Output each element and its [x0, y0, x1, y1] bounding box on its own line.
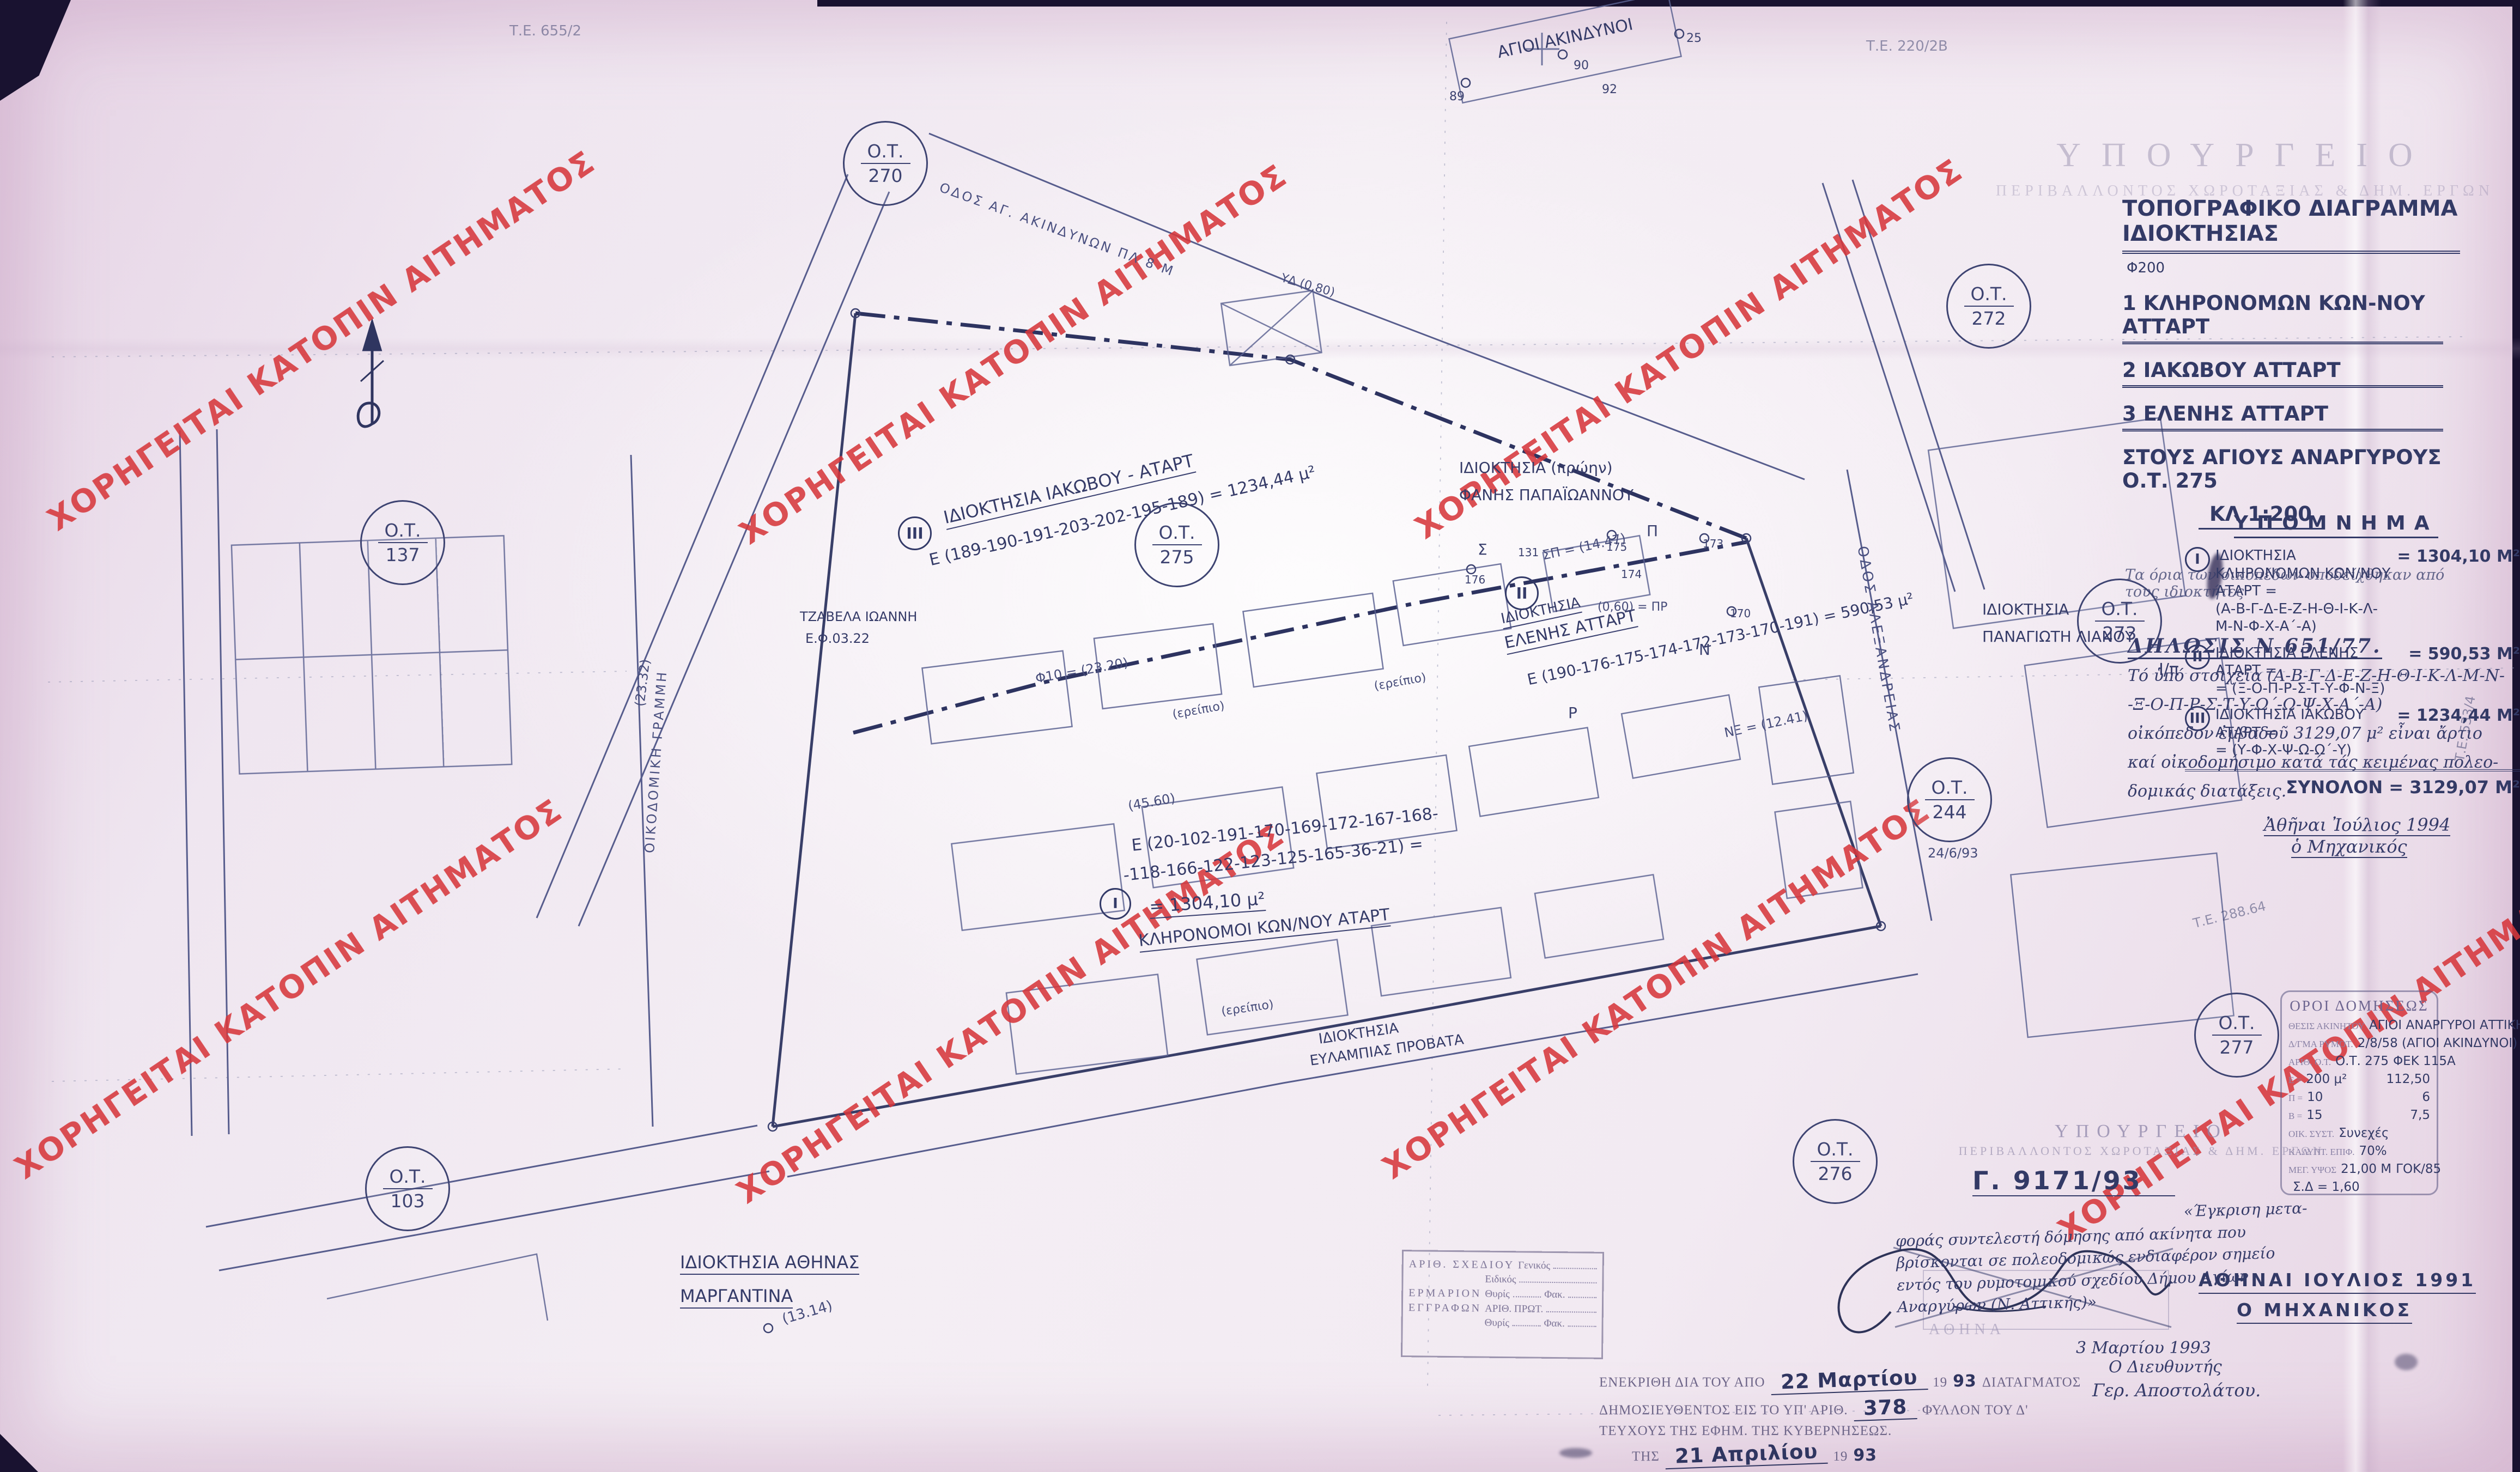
registry-row1-label: ΑΡΙΘ. ΣΧΕΔΙΟΥ — [1409, 1258, 1515, 1272]
registry-row2-label: ΕΡΜΑΡΙΟΝ — [1408, 1287, 1481, 1300]
registry-row3-label: ΕΓΓΡΑΦΩΝ — [1408, 1301, 1481, 1315]
declaration-line: -Ξ-Ο-Π-Ρ-Σ-Τ-Υ-Ω΄-Ω-Ψ-Χ-Α΄-Α) — [2128, 692, 2509, 717]
ot-number: 272 — [1964, 306, 2014, 329]
owner-line: 2 ΙΑΚΩΒΟΥ ΑΤΤΑΡΤ — [2122, 358, 2443, 388]
ot-label: Ο.Τ. — [867, 141, 903, 162]
approval-l1c: ΔΙΑΤΑΓΜΑΤΟΣ — [1982, 1375, 2081, 1390]
declaration-line: Τό ὑπό στοιχεῖα (Α-Β-Γ-Δ-Ε-Ζ-Η-Θ-Ι-Κ-Λ-Μ… — [2128, 664, 2509, 688]
block-number-circle: Ο.Τ.276 — [1793, 1119, 1878, 1204]
page-root: { "watermark": { "text": "ΧΟΡΗΓΕΙΤΑΙ ΚΑΤ… — [0, 0, 2520, 1472]
north-arrow — [358, 323, 384, 427]
plan-annotation: 176 — [1465, 573, 1485, 586]
blank-field — [1553, 1268, 1597, 1269]
declaration-title: ΔΗΛΩΣΙΣ Ν 651/77. — [2128, 635, 2382, 659]
legend-item-line1: ΙΔΙΟΚΤΗΣΙΑ ΚΛΗΡΟΝΟΜΩΝ ΚΩΝ/ΝΟΥ ΑΤΑΡΤ = — [2215, 547, 2391, 600]
ministry-stamp-line1: ΥΠΟΥΡΓΕΙΟ — [1896, 1121, 2387, 1142]
building-terms-row: Ε =200 μ²112,50 — [2288, 1072, 2430, 1086]
block-number-circle: Ο.Τ.244 — [1907, 757, 1992, 842]
director-title: Ο Διευθυντής — [2109, 1358, 2387, 1377]
terms-value2: ΦΕΚ 115Α — [2393, 1054, 2456, 1068]
ot-number: 103 — [383, 1188, 433, 1212]
building-terms-row: Π =106 — [2288, 1090, 2430, 1104]
ot-label: Ο.Τ. — [1817, 1139, 1853, 1160]
blank-field — [1568, 1325, 1596, 1327]
block-number-circle: Ο.Τ.272 — [1946, 264, 2031, 349]
approval-date2-handwritten: 21 Απριλίου — [1665, 1439, 1828, 1469]
declaration-line: καί οἰκοδομήσιμο κατά τάς κειμένας πολεο… — [2128, 750, 2509, 775]
block-number-circle: Ο.Τ.277 — [2194, 993, 2279, 1078]
approval-gazette-number: 378 — [1853, 1395, 1917, 1421]
terms-value2: 6 — [2422, 1090, 2430, 1104]
plan-annotation: ΙΔΙΟΚΤΗΣΙΑ ΑΘΗΝΑΣ — [680, 1252, 859, 1275]
block-number-circle: Ο.Τ.270 — [843, 121, 928, 206]
blank-field — [1513, 1325, 1541, 1327]
engineer-place-date: ΑΘΗΝΑΙ ΙΟΥΛΙΟΣ 1991 — [2199, 1269, 2476, 1294]
building-terms-row: Δ/ΓΜΑ ΡΥΜΟΤ.2/8/58 (ΑΓΙΟΙ ΑΚΙΝΔΥΝΟΙ) — [2288, 1036, 2430, 1050]
title-block: ΤΟΠΟΓΡΑΦΙΚΟ ΔΙΑΓΡΑΜΜΑ ΙΔΙΟΚΤΗΣΙΑΣ Φ200 1… — [2122, 196, 2460, 530]
plan-annotation: Ρ — [1568, 704, 1577, 722]
block-outline — [773, 313, 1881, 1127]
ot-number: 270 — [861, 163, 910, 186]
terms-value: Ο.Τ. 275 — [2335, 1054, 2389, 1068]
property-marker-circled: Ι — [1100, 888, 1131, 920]
approval-l3: ΤΕΥΧΟΥΣ ΤΗΣ ΕΦΗΜ. ΤΗΣ ΚΥΒΕΡΝΗΣΕΩΣ. — [1599, 1424, 1892, 1439]
terms-value: 15 — [2306, 1108, 2322, 1122]
ot-label: Ο.Τ. — [2101, 598, 2138, 619]
location-line: ΣΤΟΥΣ ΑΓΙΟΥΣ ΑΝΑΡΓΥΡΟΥΣ Ο.Τ. 275 — [2122, 446, 2460, 492]
plan-annotation: Π — [1647, 522, 1658, 540]
approval-stamp: ΕΝΕΚΡΙΘΗ ΔΙΑ ΤΟΥ ΑΠΟ 22 Μαρτίου 19 93 ΔΙ… — [1599, 1365, 2090, 1467]
block-number-circle: Ο.Τ.103 — [365, 1146, 450, 1231]
declaration-line: οἰκόπεδον ἐμβαδοῦ 3129,07 μ² εἶναι ἄρτιο — [2128, 721, 2509, 746]
registry-row3a: ΑΡΙΘ. ΠΡΩΤ. — [1485, 1303, 1543, 1316]
ministry-stamp-line2: ΠΕΡΙΒΑΛΛΟΝΤΟΣ ΧΩΡΟΤΑΞΙΑΣ & ΔΗΜ. ΕΡΓΩΝ — [1896, 1144, 2387, 1158]
building-terms-row: ΘΕΣΙΣ ΑΚΙΝΗΤΟΥΑΓΙΟΙ ΑΝΑΡΓΥΡΟΙ ΑΤΤΙΚΗΣ — [2288, 1018, 2430, 1032]
ghost-header-line1: ΥΠΟΥΡΓΕΙΟ — [1972, 136, 2517, 175]
property-marker-circled: ΙΙΙ — [898, 516, 932, 550]
legend-item-marker: Ι — [2185, 547, 2210, 572]
blank-field — [1513, 1296, 1541, 1298]
approval-date1-handwritten: 22 Μαρτίου — [1770, 1365, 1928, 1395]
ot-label: Ο.Τ. — [384, 520, 421, 541]
terms-label: Β = — [2288, 1111, 2302, 1122]
declaration-signer: ὁ Μηχανικός — [2291, 836, 2407, 858]
registry-row3b: Θυρίς — [1485, 1317, 1509, 1329]
ministry-date: 3 Μαρτίου 1993 — [2076, 1339, 2387, 1358]
survey-points — [764, 29, 1885, 1333]
plan-annotation: (0,60) = ΠΡ — [1598, 600, 1667, 614]
property-marker-circled: ΙΙ — [1505, 576, 1539, 610]
plan-annotation: ΙΔΙΟΚΤΗΣΙΑ (πρώην) — [1459, 459, 1613, 477]
declaration-body: Τό ὑπό στοιχεῖα (Α-Β-Γ-Δ-Ε-Ζ-Η-Θ-Ι-Κ-Λ-Μ… — [2128, 664, 2509, 804]
director-signature-name: Γερ. Αποστολάτου. — [2092, 1380, 2387, 1401]
registry-row2a: Θυρίς — [1485, 1288, 1509, 1300]
plan-annotation: Ε.Φ.03.22 — [805, 631, 870, 646]
terms-label: Π = — [2288, 1093, 2303, 1104]
terms-value: 2/8/58 (ΑΓΙΟΙ ΑΚΙΝΔΥΝΟΙ) — [2358, 1036, 2518, 1050]
registry-row1b: Ειδικός — [1485, 1274, 1516, 1286]
terms-value2: 7,5 — [2410, 1108, 2430, 1122]
blank-field — [1519, 1281, 1596, 1283]
blank-field — [1568, 1297, 1596, 1298]
protocol-number: Γ. 9171/93 — [1972, 1166, 2175, 1196]
building-terms-row: Β =157,5 — [2288, 1108, 2430, 1122]
owner-line: 1 ΚΛΗΡΟΝΟΜΩΝ ΚΩΝ-ΝΟΥ ΑΤΤΑΡΤ — [2122, 291, 2443, 344]
plan-annotation: 24/6/93 — [1928, 846, 1978, 861]
ot-number: 275 — [1152, 544, 1202, 568]
ot-label: Ο.Τ. — [389, 1166, 426, 1187]
ot-label: Ο.Τ. — [1931, 777, 1968, 798]
terms-value: ΑΓΙΟΙ ΑΝΑΡΓΥΡΟΙ ΑΤΤΙΚΗΣ — [2369, 1018, 2520, 1032]
approval-year2-handwritten: 93 — [1853, 1446, 1877, 1465]
ot-label: Ο.Τ. — [1158, 522, 1195, 543]
declaration-place-date: Ἀθῆναι Ἰούλιος 1994 — [2264, 814, 2450, 836]
drawing-ref: Φ200 — [2127, 260, 2165, 276]
plan-annotation: ΤΖΑΒΕΛΑ ΙΩΑΝΝΗ — [800, 609, 917, 624]
approval-l1a: ΕΝΕΚΡΙΘΗ ΔΙΑ ΤΟΥ ΑΠΟ — [1599, 1375, 1765, 1390]
plan-annotation: Τ.Ε. 220/2Β — [1866, 38, 1948, 54]
plan-annotation: 131 — [1518, 546, 1539, 559]
terms-value: 200 μ² — [2306, 1072, 2347, 1086]
terms-label: Ε = — [2288, 1075, 2302, 1086]
plan-annotation: ΦΑΝΗΣ ΠΑΠΑΪΩΑΝΝΟΥ — [1459, 486, 1634, 504]
approval-l4a: ΤΗΣ — [1632, 1449, 1660, 1464]
terms-value: 10 — [2307, 1090, 2323, 1104]
plan-annotation: 170 — [1730, 607, 1751, 620]
block-number-circle: Ο.Τ.137 — [360, 500, 445, 585]
plan-annotation: 175 — [1606, 540, 1627, 553]
registry-row1a: Γενικός — [1518, 1260, 1550, 1272]
engineer-date-box: ΑΘΗΝΑΙ ΙΟΥΛΙΟΣ 1991 Ο ΜΗΧΑΝΙΚΟΣ — [2199, 1269, 2482, 1324]
plan-annotation: 174 — [1621, 568, 1642, 581]
approval-l2b: ΦΥΛΛΟΝ ΤΟΥ Δ' — [1922, 1403, 2029, 1418]
plan-annotation: ΠΑΝΑΓΙΩΤΗ ΛΙΑΝΟΥ — [1982, 628, 2134, 646]
approval-l4b: 19 — [1833, 1449, 1848, 1464]
plan-annotation: Σ — [1478, 540, 1487, 558]
plan-annotation: Τ.Ε. 655/2 — [509, 23, 581, 39]
approval-l1b: 19 — [1933, 1375, 1947, 1390]
terms-label: ΑΡΙΘ. Ο.Τ. — [2288, 1057, 2331, 1068]
ot-number: 137 — [378, 542, 428, 565]
legend-item-area: = 1304,10 Μ² — [2397, 547, 2520, 566]
ot-number: 276 — [1811, 1161, 1860, 1184]
ot-label: Ο.Τ. — [2218, 1012, 2255, 1033]
registry-stamp: ΑΡΙΘ. ΣΧΕΔΙΟΥ Γενικός Ειδικός ΕΡΜΑΡΙΟΝ Θ… — [1401, 1250, 1604, 1359]
terms-label: ΘΕΣΙΣ ΑΚΙΝΗΤΟΥ — [2288, 1021, 2365, 1032]
blank-field — [1546, 1311, 1596, 1313]
ot-number: 277 — [2212, 1035, 2262, 1058]
ot-number: 244 — [1925, 799, 1975, 823]
building-terms-row: ΑΡΙΘ. Ο.Τ.Ο.Τ. 275ΦΕΚ 115Α — [2288, 1054, 2430, 1068]
drawing-title: ΤΟΠΟΓΡΑΦΙΚΟ ΔΙΑΓΡΑΜΜΑ ΙΔΙΟΚΤΗΣΙΑΣ — [2122, 196, 2460, 254]
ot-label: Ο.Τ. — [1970, 283, 2007, 305]
engineer-title: Ο ΜΗΧΑΝΙΚΟΣ — [2237, 1299, 2412, 1324]
owner-line: 3 ΕΛΕΝΗΣ ΑΤΤΑΡΤ — [2122, 402, 2443, 431]
plan-annotation: ΙΔΙΟΚΤΗΣΙΑ — [1982, 600, 2069, 618]
plan-annotation: ΜΑΡΓΑΝΤΙΝΑ — [680, 1286, 793, 1309]
terms-label: Δ/ΓΜΑ ΡΥΜΟΤ. — [2288, 1039, 2353, 1050]
registry-row2b: Φακ. — [1544, 1289, 1565, 1301]
plan-annotation: 25 — [1686, 32, 1702, 45]
plan-annotation: 173 — [1703, 537, 1723, 550]
plan-annotation: Ν — [1699, 641, 1710, 659]
ghost-ministry-header: ΥΠΟΥΡΓΕΙΟ ΠΕΡΙΒΑΛΛΟΝΤΟΣ ΧΩΡΟΤΑΞΙΑΣ & ΔΗΜ… — [1972, 136, 2517, 200]
legend-item: ΙΙΔΙΟΚΤΗΣΙΑ ΚΛΗΡΟΝΟΜΩΝ ΚΩΝ/ΝΟΥ ΑΤΑΡΤ =(Α… — [2185, 547, 2520, 636]
legend-item-line2: (Α-Β-Γ-Δ-Ε-Ζ-Η-Θ-Ι-Κ-Λ-Μ-Ν-Φ-Χ-Α΄-Α) — [2215, 600, 2391, 636]
declaration-block: ΔΗΛΩΣΙΣ Ν 651/77. Τό ὑπό στοιχεῖα (Α-Β-Γ… — [2128, 635, 2509, 858]
approval-l2a: ΔΗΜΟΣΙΕΥΘΕΝΤΟΣ ΕΙΣ ΤΟ ΥΠ' ΑΡΙΘ. — [1599, 1403, 1848, 1418]
legend-item-text: ΙΔΙΟΚΤΗΣΙΑ ΚΛΗΡΟΝΟΜΩΝ ΚΩΝ/ΝΟΥ ΑΤΑΡΤ =(Α-… — [2215, 547, 2391, 636]
ministry-protocol-block: ΥΠΟΥΡΓΕΙΟ ΠΕΡΙΒΑΛΛΟΝΤΟΣ ΧΩΡΟΤΑΞΙΑΣ & ΔΗΜ… — [1896, 1121, 2387, 1401]
registry-row3c: Φακ. — [1544, 1318, 1565, 1330]
legend-title: ΥΠΟΜΝΗΜΑ — [2234, 512, 2438, 538]
plan-annotation: 89 — [1449, 90, 1465, 104]
terms-value2: ΓΟΚ/85 — [2396, 1162, 2441, 1176]
declaration-line: δομικάς διατάξεις. — [2128, 779, 2509, 804]
plan-annotation: 90 — [1574, 59, 1589, 72]
terms-value2: 112,50 — [2387, 1072, 2430, 1086]
building-terms-title: ΟΡΟΙ ΔΟΜΗΣΕΩΣ — [2288, 997, 2430, 1014]
plan-annotation: 92 — [1602, 83, 1617, 96]
approval-year1-handwritten: 93 — [1953, 1372, 1977, 1391]
